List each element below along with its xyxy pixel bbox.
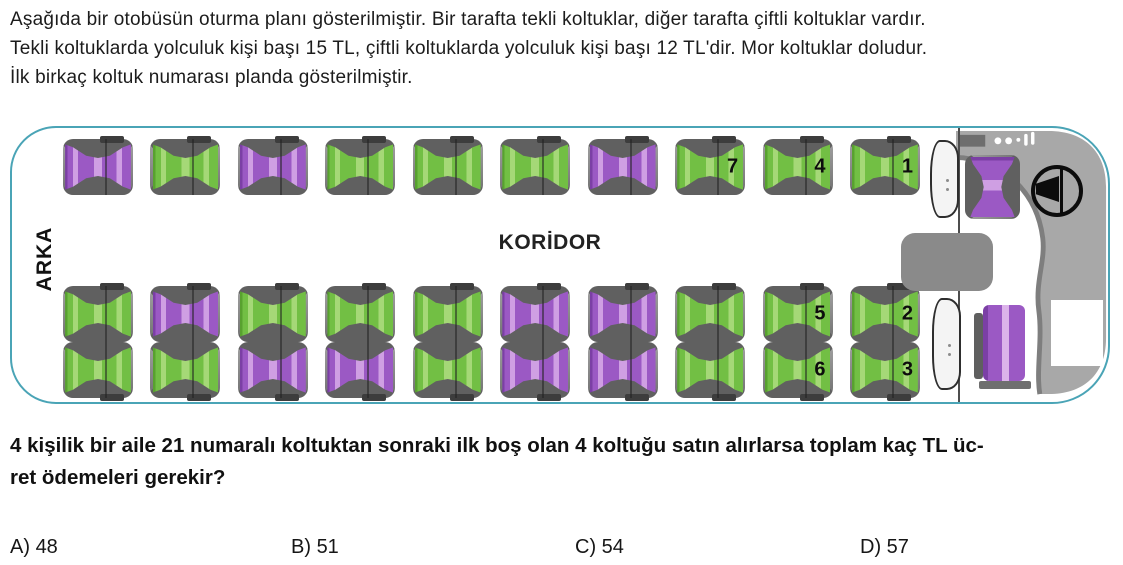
seat-number-label: 1 (902, 156, 913, 179)
seat-armrest-tab (712, 283, 736, 290)
rear-label: ARKA (33, 214, 57, 304)
seat-cushion (327, 143, 393, 190)
bus-seat-occupied (238, 342, 308, 398)
option-a: A) 48 (10, 536, 58, 559)
option-letter: A) (10, 536, 30, 558)
question-text: 4 kişilik bir aile 21 numaralı koltuktan… (10, 430, 984, 494)
seat-cushion (327, 290, 393, 337)
driver-seat (965, 155, 1020, 219)
seat-cushion (415, 346, 481, 393)
seat-number-label: 5 (814, 303, 825, 326)
seat-armrest-tab (362, 394, 386, 401)
bus-seat-empty (325, 139, 395, 195)
seat-number-label: 2 (902, 303, 913, 326)
attendant-seat-base (979, 381, 1031, 389)
bus-seat-empty (500, 139, 570, 195)
seat-cushion (415, 143, 481, 190)
dashboard-panel-icon (960, 135, 985, 147)
option-letter: D) (860, 536, 881, 558)
steering-wheel-icon (1031, 165, 1083, 217)
bus-seat-occupied (500, 286, 570, 342)
seat-number-label: 4 (814, 156, 825, 179)
seat-armrest-tab (275, 283, 299, 290)
option-value: 48 (36, 536, 58, 558)
driver-seat-cushion (969, 157, 1015, 217)
corridor-label: KORİDOR (400, 231, 700, 255)
bus-seat-empty-6: 6 (763, 342, 833, 398)
seat-armrest-tab (187, 136, 211, 143)
worksheet-page: Aşağıda bir otobüsün oturma planı göster… (0, 0, 1123, 565)
front-entry-steps (1051, 300, 1103, 366)
seat-armrest-tab (187, 394, 211, 401)
front-door-top (930, 140, 959, 218)
seat-armrest-tab (450, 136, 474, 143)
bus-seat-empty-3: 3 (850, 342, 920, 398)
question-line: 4 kişilik bir aile 21 numaralı koltuktan… (10, 430, 984, 462)
option-value: 54 (602, 536, 624, 558)
seat-number-label: 6 (814, 359, 825, 382)
bus-seat-empty (238, 286, 308, 342)
seat-armrest-tab (625, 394, 649, 401)
seat-cushion (65, 290, 131, 337)
seat-cushion (65, 346, 131, 393)
bus-seat-occupied (325, 342, 395, 398)
bus-seat-empty (413, 139, 483, 195)
bus-seat-empty (413, 286, 483, 342)
option-b: B) 51 (291, 536, 339, 559)
question-line: ret ödemeleri gerekir? (10, 462, 984, 494)
double-seat-window-row: 63 (63, 342, 920, 398)
door-handle-dots-icon (948, 344, 951, 347)
bus-seat-empty (675, 342, 745, 398)
seat-armrest-tab (712, 136, 736, 143)
double-seat-aisle-row: 52 (63, 286, 920, 342)
bus-seat-occupied (588, 139, 658, 195)
option-letter: B) (291, 536, 311, 558)
seat-cushion (240, 290, 306, 337)
seat-cushion (590, 346, 656, 393)
seat-armrest-tab (537, 394, 561, 401)
seat-armrest-tab (800, 394, 824, 401)
option-value: 51 (317, 536, 339, 558)
seat-cushion (502, 290, 568, 337)
bus-seat-occupied (588, 342, 658, 398)
option-letter: C) (575, 536, 596, 558)
dashboard-vent-icon (1024, 134, 1027, 146)
seat-cushion (240, 346, 306, 393)
attendant-seat (974, 305, 1032, 389)
seat-cushion (590, 143, 656, 190)
seat-cushion (415, 290, 481, 337)
seat-armrest-tab (187, 283, 211, 290)
seat-cushion (590, 290, 656, 337)
seat-cushion (502, 346, 568, 393)
bus-seat-empty-1: 1 (850, 139, 920, 195)
seat-armrest-tab (625, 283, 649, 290)
seat-armrest-tab (450, 283, 474, 290)
seat-cushion (153, 290, 219, 337)
seat-armrest-tab (800, 136, 824, 143)
seat-armrest-tab (537, 283, 561, 290)
seat-armrest-tab (275, 394, 299, 401)
seat-cushion (240, 143, 306, 190)
seat-cushion (677, 290, 743, 337)
seat-cushion (502, 143, 568, 190)
intro-line: Tekli koltuklarda yolculuk kişi başı 15 … (10, 34, 927, 63)
seat-armrest-tab (712, 394, 736, 401)
bus-seat-empty-5: 5 (763, 286, 833, 342)
seat-cushion (153, 346, 219, 393)
seat-armrest-tab (100, 283, 124, 290)
bus-seat-occupied (63, 139, 133, 195)
bus-seat-empty (413, 342, 483, 398)
seat-armrest-tab (537, 136, 561, 143)
option-value: 57 (887, 536, 909, 558)
attendant-seat-back (974, 313, 983, 379)
bus-seat-occupied (238, 139, 308, 195)
intro-text: Aşağıda bir otobüsün oturma planı göster… (10, 5, 927, 92)
option-c: C) 54 (575, 536, 624, 559)
seat-armrest-tab (362, 136, 386, 143)
seat-armrest-tab (100, 136, 124, 143)
bus-seat-empty-2: 2 (850, 286, 920, 342)
intro-line: İlk birkaç koltuk numarası planda göster… (10, 63, 927, 92)
bus-seat-empty (150, 139, 220, 195)
seat-cushion (153, 143, 219, 190)
bus-seating-diagram: ARKA KORİDOR 741 52 63 (10, 126, 1110, 404)
seat-armrest-tab (362, 283, 386, 290)
seat-armrest-tab (100, 394, 124, 401)
seat-armrest-tab (625, 136, 649, 143)
seat-armrest-tab (450, 394, 474, 401)
dashboard-vent-icon (1031, 132, 1034, 145)
intro-line: Aşağıda bir otobüsün oturma planı göster… (10, 5, 927, 34)
bus-seat-occupied (500, 342, 570, 398)
dashboard-light-icon (1005, 137, 1012, 144)
single-seat-row: 741 (63, 139, 920, 195)
seat-cushion (65, 143, 131, 190)
option-d: D) 57 (860, 536, 909, 559)
engine-cover-box (901, 233, 993, 291)
dashboard-light-icon (994, 137, 1001, 144)
bus-seat-empty (150, 342, 220, 398)
bus-seat-empty-7: 7 (675, 139, 745, 195)
bus-seat-empty (63, 342, 133, 398)
bus-seat-occupied (150, 286, 220, 342)
door-handle-dots-icon (946, 179, 949, 182)
bus-seat-empty (675, 286, 745, 342)
seat-number-label: 3 (902, 359, 913, 382)
seat-armrest-tab (887, 394, 911, 401)
seat-armrest-tab (887, 136, 911, 143)
dashboard-light-icon (1016, 138, 1020, 142)
seat-number-label: 7 (727, 156, 738, 179)
bus-seat-empty (63, 286, 133, 342)
bus-seat-empty-4: 4 (763, 139, 833, 195)
bus-seat-empty (325, 286, 395, 342)
bus-seat-occupied (588, 286, 658, 342)
seat-armrest-tab (800, 283, 824, 290)
seat-cushion (327, 346, 393, 393)
seat-armrest-tab (275, 136, 299, 143)
seat-cushion (677, 346, 743, 393)
attendant-seat-cushion (983, 305, 1025, 381)
front-door-bottom (932, 298, 961, 390)
